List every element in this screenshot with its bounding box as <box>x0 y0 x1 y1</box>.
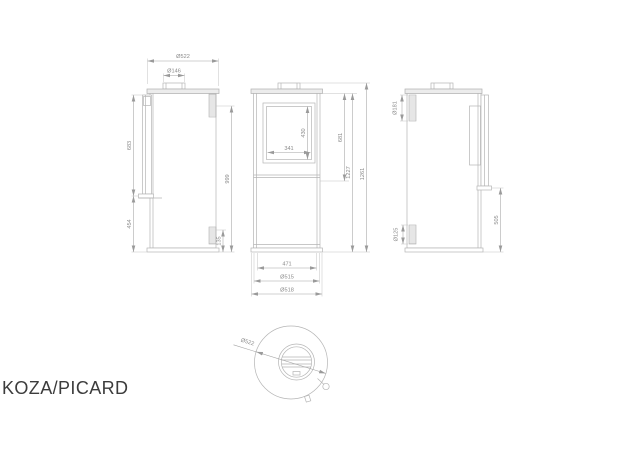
dim-label-body-height: 1227 <box>346 166 352 178</box>
stove-body <box>407 94 481 249</box>
dim-label-shelf-height: 505 <box>494 215 500 224</box>
base-plate <box>251 248 323 252</box>
dim-label-base-height: 135 <box>217 236 223 245</box>
dim-label-glass-width: 341 <box>284 146 293 152</box>
cap-latch <box>293 372 300 376</box>
model-title: KOZA/PICARD <box>2 378 128 398</box>
dim-label-glass-height: 430 <box>301 128 307 137</box>
drawing-svg: Ø522 Ø146 683 454 999 135 <box>0 0 624 460</box>
top-plate <box>251 89 323 94</box>
stove-body <box>150 94 216 249</box>
dim-label-air-inlet: Ø125 <box>394 228 400 242</box>
dim-label-door-height: 681 <box>338 133 344 142</box>
dim-label-base-inner-diameter: Ø515 <box>280 275 294 281</box>
dim-label-leg-spacing: 471 <box>282 262 291 268</box>
bottom-tab <box>305 395 311 402</box>
door-edge <box>143 95 152 194</box>
air-grille-bottom <box>209 227 216 244</box>
door-handle-knob <box>323 383 329 389</box>
dim-label-base-outer-diameter: Ø518 <box>280 288 294 294</box>
right-side-view: Ø181 Ø125 505 <box>393 83 504 252</box>
door-shelf <box>139 194 154 198</box>
dim-label-flue-collar: Ø146 <box>167 69 181 75</box>
flue-cap-outer <box>279 344 315 380</box>
front-view: 430 341 681 1227 1261 471 Ø515 Ø518 <box>251 83 370 297</box>
flue-cap-inner <box>281 347 311 377</box>
top-plate <box>405 89 482 94</box>
dim-label-right-height: 999 <box>225 174 231 183</box>
dim-label-top-width: Ø522 <box>176 54 190 60</box>
dim-label-lower-height: 454 <box>127 219 133 228</box>
top-view: Ø522 <box>234 326 330 402</box>
left-side-view: Ø522 Ø146 683 454 999 135 <box>127 54 235 252</box>
door-shelf <box>477 186 492 190</box>
dim-label-upper-height: 683 <box>127 141 133 150</box>
dim-label-flue-outlet: Ø181 <box>393 101 399 115</box>
air-grille-top <box>209 94 216 117</box>
base-plate <box>405 248 483 252</box>
flue-outlet-grille <box>409 95 416 121</box>
base-plate <box>147 248 219 252</box>
air-inlet-grille <box>409 225 416 244</box>
stove-body <box>254 94 321 249</box>
dim-label-total-height: 1261 <box>360 168 366 180</box>
technical-drawing-sheet: Ø522 Ø146 683 454 999 135 <box>0 0 624 460</box>
dim-label-top-diameter: Ø522 <box>240 338 255 348</box>
top-plate <box>147 89 219 94</box>
